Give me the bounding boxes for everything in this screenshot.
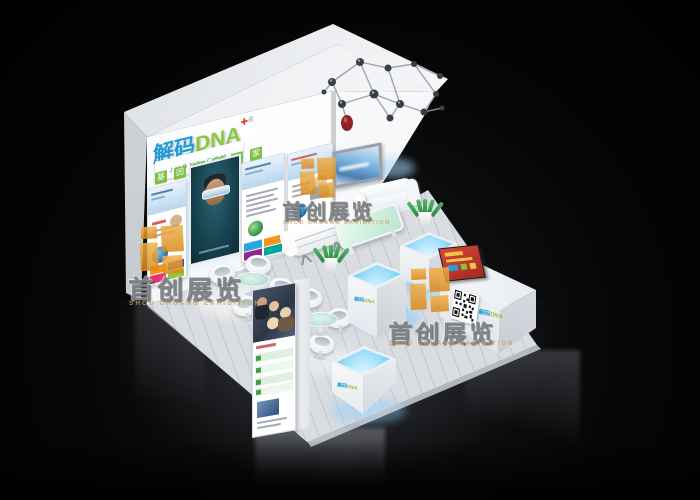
watermark-subtitle: SHOU CHUANG EXHIBITION [283, 220, 391, 226]
molecule-chandelier-icon [316, 46, 450, 142]
display-lectern: 解码DNA [332, 346, 396, 414]
plant-right [412, 188, 438, 228]
watermark-subtitle: SHOU CHUANG EXHIBITION [129, 300, 261, 307]
watermark-logo-icon [409, 267, 455, 317]
medical-cross-icon: ✚ [241, 116, 249, 128]
plant-left [318, 232, 344, 274]
tagline-tile: 基 [155, 170, 167, 185]
bottom-vignette [0, 440, 700, 500]
watermark-center: 首创展览 SHOU CHUANG EXHIBITION [282, 158, 402, 228]
booth-render: 解码DNA✚® — JMDNA.COM — 基 因 检 测 专 家 [0, 0, 700, 500]
watermark-left: 首创展览 SHOU CHUANG EXHIBITION [128, 226, 278, 312]
watermark-subtitle: SHOU CHUANG EXHIBITION [389, 341, 514, 347]
partition-side-face [294, 278, 310, 431]
poster-photo-block [257, 398, 279, 418]
watermark-right: 首创展览 SHOU CHUANG EXHIBITION [388, 268, 528, 352]
tagline-tile: 因 [174, 165, 186, 180]
registered-mark: ® [248, 114, 254, 124]
daybed-leg [304, 254, 313, 262]
red-lamp [341, 115, 353, 131]
